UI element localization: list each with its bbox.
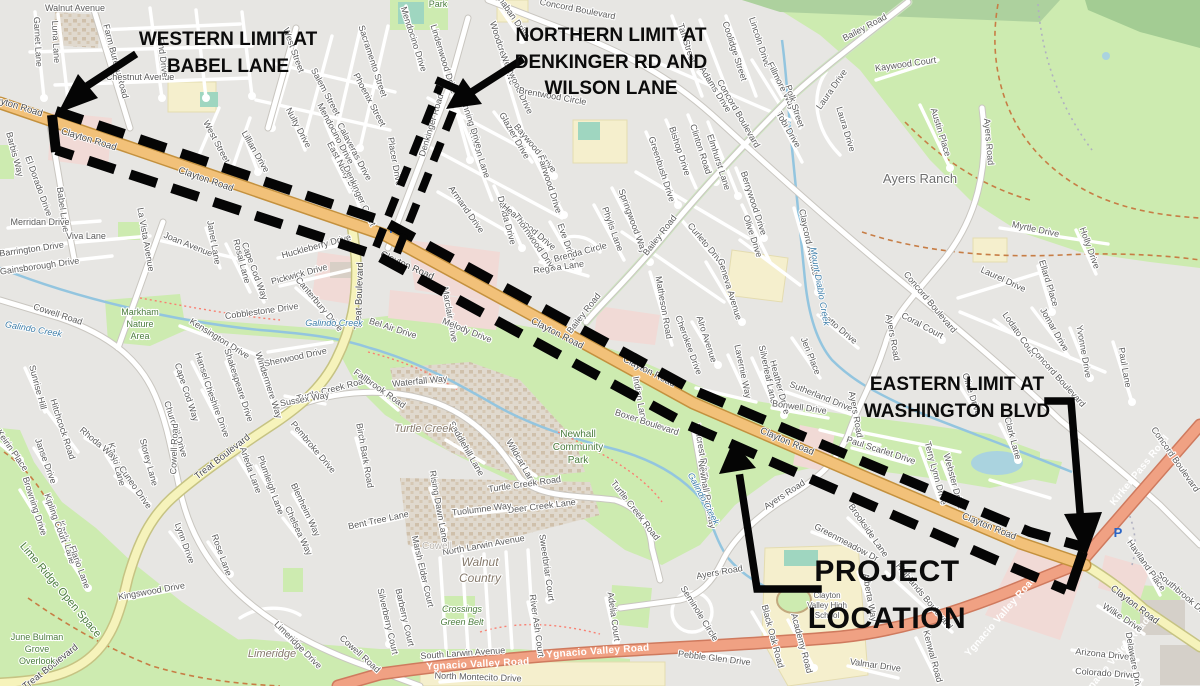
annotation-line: WASHINGTON BLVD bbox=[858, 399, 1056, 426]
annotation-line: NORTHERN LIMIT AT bbox=[511, 23, 711, 50]
annotation-line: LOCATION bbox=[792, 596, 982, 643]
map-label: Grove bbox=[25, 644, 50, 654]
annotation-line: BABEL LANE bbox=[128, 54, 328, 81]
map-label: Cowell Road bbox=[168, 423, 180, 474]
map-label: Green Belt bbox=[440, 617, 484, 627]
map-label: Overlook bbox=[19, 656, 56, 666]
annotation-line: EASTERN LIMIT AT bbox=[858, 372, 1056, 399]
annotation-line: PROJECT bbox=[792, 549, 982, 596]
map-svg: Clayton RoadClayton RoadClayton RoadClay… bbox=[0, 0, 1200, 686]
map-label: Cowell bbox=[422, 541, 452, 552]
map-label: Crossings bbox=[442, 604, 483, 614]
map-canvas[interactable]: Clayton RoadClayton RoadClayton RoadClay… bbox=[0, 0, 1200, 686]
map-label: Park bbox=[429, 0, 448, 9]
map-label: Nature bbox=[126, 319, 153, 329]
map-label: Markham bbox=[121, 307, 159, 317]
eastern-limit-annotation: EASTERN LIMIT AT WASHINGTON BLVD bbox=[858, 372, 1056, 425]
map-label: Walnut bbox=[461, 555, 499, 569]
map-label: Ayers Ranch bbox=[883, 171, 957, 186]
map-label: Newhall bbox=[560, 429, 596, 440]
map-label: Walnut Avenue bbox=[45, 3, 105, 13]
map-label: Viva Lane bbox=[66, 231, 106, 241]
map-label: Turtle Creek bbox=[394, 423, 454, 435]
annotation-line: DENKINGER RD AND bbox=[511, 50, 711, 77]
map-label: Country bbox=[459, 571, 502, 585]
map-label: Limeridge bbox=[248, 648, 296, 660]
map-label: June Bulman bbox=[11, 632, 64, 642]
map-label: Community bbox=[553, 442, 604, 453]
map-label: Galindo Creek bbox=[305, 318, 363, 328]
parking-icon: P bbox=[1114, 525, 1123, 540]
map-label: Merridan Drive bbox=[10, 217, 69, 227]
annotation-line: WILSON LANE bbox=[511, 76, 711, 103]
annotation-line: WESTERN LIMIT AT bbox=[128, 27, 328, 54]
map-label: Park bbox=[568, 455, 590, 466]
western-limit-annotation: WESTERN LIMIT AT BABEL LANE bbox=[128, 27, 328, 80]
map-label: Area bbox=[130, 331, 149, 341]
project-location-annotation: PROJECT LOCATION bbox=[792, 549, 982, 642]
northern-limit-annotation: NORTHERN LIMIT AT DENKINGER RD AND WILSO… bbox=[511, 23, 711, 103]
